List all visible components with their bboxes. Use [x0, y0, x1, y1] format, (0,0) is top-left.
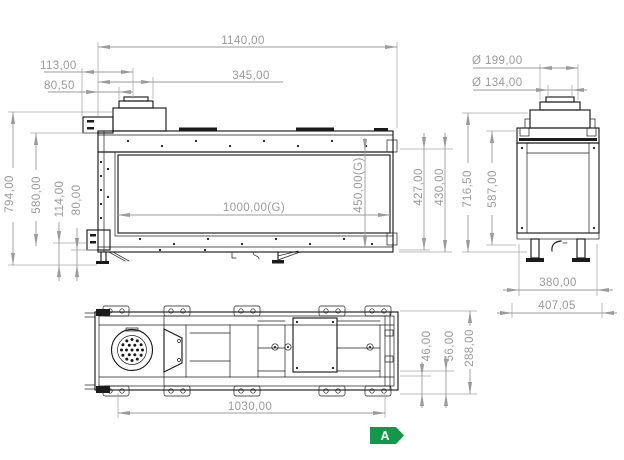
dim-label: 46,00 [421, 331, 433, 362]
gas-pipe [253, 252, 259, 259]
dim-label: 716,50 [462, 170, 474, 208]
dim-side-flue-outer: Ø 199,00 [472, 55, 578, 68]
front-flue-collar [113, 97, 166, 131]
dim-plan-depth-46: 46,00 [421, 331, 433, 408]
front-body-outline [98, 131, 393, 252]
plan-burner-tray [293, 318, 337, 372]
dim-plan-total-depth: 288,00 [464, 311, 476, 394]
front-glass-opening [118, 155, 390, 233]
front-legs [96, 251, 300, 264]
dim-side-total-height: 716,50 [462, 113, 474, 252]
plan-view [85, 306, 398, 396]
gas-pipe [552, 241, 561, 251]
dim-plan-depth-56: 56,00 [444, 331, 456, 408]
dim-front-height-80: 80,00 [71, 185, 83, 281]
dim-label: 80,50 [44, 80, 75, 92]
energy-class-label: A [380, 429, 389, 443]
dim-front-body-height: 580,00 [31, 133, 43, 246]
side-view [517, 97, 599, 262]
dim-label: 1030,00 [228, 401, 272, 413]
plan-body-outline [95, 312, 398, 390]
dim-label: 113,00 [40, 60, 77, 72]
dim-label: 1000,00(G) [223, 202, 285, 214]
energy-class-arrow: A [370, 427, 404, 444]
dim-label: 80,00 [71, 185, 83, 216]
dim-label: 794,00 [4, 175, 16, 213]
dim-label: 430,00 [434, 168, 446, 206]
dim-side-depth-407: 407,05 [497, 300, 617, 313]
dim-label: 56,00 [444, 331, 456, 362]
dim-label: Ø 199,00 [472, 55, 523, 67]
dim-front-total-height: 794,00 [4, 112, 16, 265]
side-legs [526, 239, 590, 262]
side-body-outline [517, 143, 599, 233]
dim-front-total-width: 1140,00 [98, 35, 397, 47]
plan-screw-targets [272, 344, 373, 350]
side-mounting-bracket [517, 128, 599, 143]
perforation-holes [120, 338, 144, 362]
dim-front-height-430: 430,00 [434, 133, 446, 252]
dim-label: 407,05 [538, 300, 576, 312]
dim-label: 580,00 [31, 176, 43, 214]
dim-label: Ø 134,00 [472, 77, 523, 89]
plan-flue-outlet [112, 328, 153, 371]
dim-plan-base-width: 1030,00 [118, 401, 385, 413]
dimension-drawing: 1140,00 113,00 80,50 345,00 794,00 [0, 0, 624, 460]
dim-label: 380,00 [539, 277, 577, 289]
dim-side-flue-inner: Ø 134,00 [472, 77, 587, 90]
dim-label: 1140,00 [221, 35, 265, 47]
top-vent-slot [296, 128, 334, 132]
dim-side-body-height: 587,00 [487, 131, 499, 245]
side-screws [521, 147, 595, 229]
dim-front-height-114: 114,00 [54, 181, 66, 281]
dim-label: 288,00 [464, 329, 476, 367]
dim-label: 587,00 [487, 170, 499, 208]
dim-label: 450,00(G) [353, 157, 365, 212]
dim-front-height-427: 427,00 [413, 133, 425, 250]
dimensions: 1140,00 113,00 80,50 345,00 794,00 [4, 35, 617, 413]
dim-front-glass-width: 1000,00(G) [118, 202, 390, 215]
side-flue-collar [525, 97, 595, 128]
gas-pipe [232, 252, 236, 258]
dim-side-depth-380: 380,00 [503, 277, 613, 290]
front-screws [100, 140, 373, 251]
technical-drawing-canvas: 1140,00 113,00 80,50 345,00 794,00 [0, 0, 624, 460]
dim-label: 114,00 [54, 181, 66, 218]
front-view [83, 97, 397, 264]
plan-funnel [164, 329, 182, 372]
top-vent-slot [179, 128, 217, 132]
dim-front-offset-113: 113,00 [40, 60, 133, 72]
dim-label: 427,00 [413, 168, 425, 206]
plan-corner-dots [296, 321, 334, 369]
dim-label: 345,00 [232, 70, 270, 82]
